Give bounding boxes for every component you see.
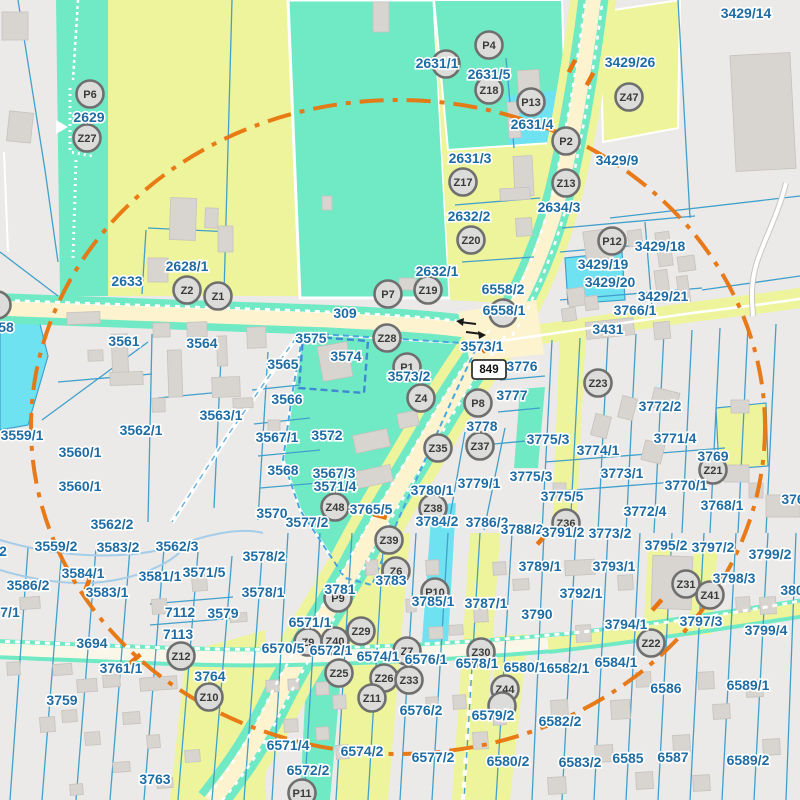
parcel-label: 3575 [295, 330, 326, 346]
building [548, 777, 567, 795]
map-marker-z35[interactable]: Z35 [425, 435, 452, 462]
parcel-label: 7/1 [0, 604, 20, 620]
road-shield-label: 849 [479, 364, 498, 376]
parcel-label: 2 [0, 543, 7, 559]
building [724, 465, 749, 482]
building [473, 732, 489, 750]
parcel-label: 3797/3 [680, 613, 723, 629]
parcel-label: 3570 [256, 505, 287, 521]
building [653, 321, 671, 340]
building [62, 709, 78, 722]
building [453, 695, 467, 710]
parcel-label: 3789/1 [519, 558, 562, 574]
map-marker-p13[interactable]: P13 [518, 89, 545, 116]
building [169, 198, 196, 241]
parcel-label: 6572/2 [287, 762, 330, 778]
parcel-label: 3572 [311, 427, 342, 443]
map-marker-z20[interactable]: Z20 [458, 227, 485, 254]
parcel-label: 6571/4 [267, 737, 310, 753]
parcel-label: 3578/2 [243, 548, 286, 564]
parcel-label: 2628/1 [166, 258, 209, 274]
building [247, 327, 267, 349]
marker-label: Z29 [352, 626, 371, 638]
cadastral-map-svg[interactable]: P6Z27Z2Z1P4Z18P13P2Z13Z47Z17Z20P12P7Z19Z… [0, 0, 800, 800]
parcel-label: 6558/2 [482, 281, 525, 297]
building [698, 672, 715, 690]
parcel-label: 6578/1 [456, 655, 499, 671]
parcel-label: 3793/1 [593, 558, 636, 574]
map-marker-z11[interactable]: Z11 [359, 685, 386, 712]
building [316, 682, 330, 696]
building [731, 400, 749, 413]
marker-label: Z18 [480, 85, 499, 97]
parcel-label: 6574/2 [341, 743, 384, 759]
map-marker-z13[interactable]: Z13 [553, 170, 580, 197]
parcel-label: 6586 [650, 680, 681, 696]
parcel-label: 6584/1 [595, 654, 638, 670]
building [426, 560, 440, 576]
map-marker-z2[interactable]: Z2 [174, 277, 201, 304]
parcel-label: 3579 [207, 605, 238, 621]
marker-label: Z35 [429, 443, 448, 455]
map-marker-z39[interactable]: Z39 [376, 527, 403, 554]
map-marker-p2[interactable]: P2 [553, 128, 580, 155]
marker-label: P7 [381, 289, 394, 301]
parcel-label: 3790 [521, 606, 552, 622]
parcel-label: 6583/2 [559, 754, 602, 770]
building [693, 775, 711, 792]
map-marker-z28[interactable]: Z28 [374, 325, 401, 352]
map-marker-p4[interactable]: P4 [476, 32, 503, 59]
parcel-label: 3772/4 [624, 503, 667, 519]
map-marker-z25[interactable]: Z25 [326, 660, 353, 687]
marker-label: Z33 [400, 675, 419, 687]
marker-label: Z22 [642, 638, 661, 650]
building [373, 2, 389, 32]
map-canvas[interactable]: P6Z27Z2Z1P4Z18P13P2Z13Z47Z17Z20P12P7Z19Z… [0, 0, 800, 800]
marker-label: Z31 [677, 579, 696, 591]
parcel-label: 3431 [592, 321, 623, 337]
marker-label: Z17 [454, 177, 473, 189]
building [322, 196, 332, 210]
parcel-label: 3761/1 [100, 660, 143, 676]
parcel-label: 6574/1 [357, 648, 400, 664]
parcel-label: 3794/1 [605, 616, 648, 632]
building [153, 323, 170, 338]
parcel-label: 3759 [46, 692, 77, 708]
parcel-label: 6589/2 [727, 752, 770, 768]
marker-label: Z25 [330, 668, 349, 680]
parcel-label: 3561 [108, 333, 139, 349]
parcel-label: 3799/4 [745, 622, 788, 638]
map-marker-z1[interactable]: Z1 [205, 283, 232, 310]
parcel-label: 309 [333, 305, 357, 321]
building [333, 695, 347, 710]
parcel-label: 6582/1 [547, 660, 590, 676]
parcel-label: 3770/1 [665, 477, 708, 493]
marker-label: P4 [482, 40, 496, 52]
parcel-label: 3787/1 [465, 595, 508, 611]
parcel-label: 3773/1 [601, 465, 644, 481]
parcel-label: 3562/3 [156, 538, 199, 554]
parcel-label: 6558/1 [483, 302, 526, 318]
parcel-label: 3799/2 [749, 546, 792, 562]
marker-label: Z13 [557, 178, 576, 190]
parcel-label: 2629 [73, 109, 104, 125]
marker-label: Z48 [326, 502, 345, 514]
parcel-label: 3560/1 [59, 444, 102, 460]
building [611, 700, 631, 720]
map-marker-z29[interactable]: Z29 [348, 618, 375, 645]
building [618, 575, 634, 591]
parcel-label: 2632/2 [448, 208, 491, 224]
parcel-label: 6585 [612, 750, 643, 766]
parcel-label: 3763 [139, 771, 170, 787]
marker-label: Z21 [704, 465, 723, 477]
parcel-label: 7113 [163, 626, 194, 642]
building [70, 784, 84, 796]
parcel-label: 3772/2 [639, 398, 682, 414]
parcel-label: 3571/5 [183, 564, 226, 580]
parcel-label: 3429/9 [596, 152, 639, 168]
parcel-label: 6577/2 [412, 749, 455, 765]
parcel-label: 6587 [657, 749, 688, 765]
map-marker-z17[interactable]: Z17 [450, 169, 477, 196]
parcel-label: 3781 [324, 581, 355, 597]
parcel-label: 3797/2 [692, 539, 735, 555]
parcel-label: 6589/1 [727, 677, 770, 693]
parcel-label: 3583/2 [97, 539, 140, 555]
parcel-label: 3788/2 [501, 521, 544, 537]
building [77, 678, 98, 692]
parcel-label: 3429/18 [635, 238, 686, 254]
marker-label: Z23 [589, 378, 608, 390]
building [88, 350, 103, 362]
parcel-label: 3577/2 [286, 514, 329, 530]
map-marker-p11[interactable]: P11 [289, 780, 316, 800]
building [147, 735, 161, 749]
parcel-label: 3779/1 [458, 475, 501, 491]
building [565, 559, 596, 576]
building [513, 579, 530, 591]
parcel-label: 2632/1 [416, 263, 459, 279]
parcel-label: 6570/5 [262, 640, 305, 656]
parcel-label: 3773/2 [589, 525, 632, 541]
parcel-label: 3785/1 [412, 593, 455, 609]
marker-label: Z4 [415, 393, 429, 405]
map-marker-z23[interactable]: Z23 [585, 370, 612, 397]
parcel-label: 6582/2 [539, 713, 582, 729]
parcel-label: 6576/1 [405, 651, 448, 667]
map-marker-z10[interactable]: Z10 [196, 684, 223, 711]
parcel-label: 3769 [697, 448, 728, 464]
parcel-label: 3571/4 [314, 478, 357, 494]
building [110, 371, 143, 385]
parcel-label: 7112 [165, 604, 196, 620]
parcel-label: 3775/3 [510, 468, 553, 484]
marker-label: Z10 [200, 692, 219, 704]
marker-label: Z28 [378, 333, 397, 345]
parcel-label: 6572/1 [310, 642, 353, 658]
road-shield: 849 [472, 360, 506, 379]
marker-label: P8 [471, 398, 484, 410]
parcel-label: 3776 [506, 358, 537, 374]
parcel-label: 3573/1 [461, 338, 504, 354]
building [429, 627, 444, 640]
map-marker-z47[interactable]: Z47 [616, 84, 643, 111]
building [584, 295, 599, 311]
parcel-label: 6579/2 [472, 707, 515, 723]
building [493, 562, 507, 576]
parcel-label: 3584/1 [62, 565, 105, 581]
parcel-label: 3766/1 [614, 302, 657, 318]
building [567, 287, 586, 307]
parcel-label: 3694 [76, 635, 107, 651]
building [7, 662, 21, 676]
building [39, 716, 55, 732]
parcel-label: 3567/1 [256, 429, 299, 445]
parcel-label: 6580/1 [504, 659, 547, 675]
building [6, 111, 33, 143]
parcel-label: 3559/1 [1, 427, 44, 443]
marker-label: Z11 [363, 693, 381, 705]
parcel-label: 3578/1 [242, 584, 285, 600]
marker-label: Z2 [181, 285, 194, 297]
building [216, 336, 227, 366]
map-marker-p6[interactable]: P6 [77, 81, 104, 108]
building [167, 350, 183, 397]
marker-label: Z26 [375, 673, 394, 685]
marker-label: P13 [521, 97, 541, 109]
map-marker-p12[interactable]: P12 [599, 228, 626, 255]
parcel-label: 6571/1 [289, 614, 332, 630]
marker-label: Z41 [701, 590, 720, 602]
building [53, 663, 73, 675]
map-marker-p8[interactable]: P8 [465, 390, 492, 417]
parcel-label: 2631/3 [449, 150, 492, 166]
map-marker-z33[interactable]: Z33 [396, 667, 423, 694]
parcel-label: 3564 [186, 335, 217, 351]
parcel-label: 3429/26 [605, 54, 656, 70]
parcel-label: 380 [780, 582, 800, 598]
map-marker-z19[interactable]: Z19 [415, 277, 442, 304]
parcel-label: 3429/19 [578, 256, 629, 272]
map-marker-p7[interactable]: P7 [375, 281, 402, 308]
marker-label: P11 [293, 788, 312, 800]
parcel-label: 3559/2 [35, 538, 78, 554]
parcel-label: 2634/3 [538, 199, 581, 215]
parcel-label: 3566 [271, 391, 302, 407]
parcel-label: 3568 [267, 462, 298, 478]
marker-label: Z47 [620, 92, 639, 104]
parcel-label: 3586/2 [7, 577, 50, 593]
parcel-label: 3565 [267, 356, 298, 372]
parcel-label: 3778 [466, 418, 497, 434]
parcel-label: 3562/1 [120, 422, 163, 438]
marker-label: Z12 [172, 651, 191, 663]
building [123, 711, 141, 724]
parcel-label: 3774/1 [577, 442, 620, 458]
building [20, 596, 41, 609]
parcel-label: 376 [781, 491, 800, 507]
parcel-label: 3560/1 [59, 478, 102, 494]
building [500, 187, 531, 201]
parcel-label: 58 [0, 319, 14, 335]
building [212, 377, 241, 398]
marker-label: Z27 [78, 133, 97, 145]
parcel-label: 3429/20 [585, 274, 636, 290]
parcel-label: 3765/5 [350, 501, 393, 517]
building [284, 719, 299, 733]
building [561, 307, 577, 322]
map-marker-z27[interactable]: Z27 [74, 125, 101, 152]
parcel-label: 3798/3 [713, 570, 756, 586]
parcel-label: 6580/2 [487, 753, 530, 769]
building [185, 749, 201, 762]
parcel-label: 3562/2 [91, 516, 134, 532]
marker-label: Z1 [212, 291, 225, 303]
parcel-label: 6576/2 [400, 702, 443, 718]
parcel-label: 3795/2 [645, 537, 688, 553]
building [713, 704, 731, 720]
building [316, 727, 330, 741]
parcel-label: 2631/4 [511, 116, 554, 132]
map-marker-z37[interactable]: Z37 [467, 433, 494, 460]
parcel-label: 3581/1 [139, 568, 182, 584]
parcel-label: 3775/3 [527, 431, 570, 447]
parcel-label: 3573/2 [388, 368, 431, 384]
parcel-label: 3791/2 [542, 524, 585, 540]
building [103, 674, 121, 687]
building [2, 12, 28, 40]
parcel-label: 3429/14 [721, 5, 772, 21]
marker-label: P2 [559, 136, 572, 148]
marker-label: P6 [83, 89, 96, 101]
parcel-label: 3574 [330, 348, 361, 364]
parcel-label: 3563/1 [200, 407, 243, 423]
map-marker-z22[interactable]: Z22 [638, 630, 665, 657]
parcel-label: 3775/5 [541, 488, 584, 504]
parcel-label: 3764 [194, 668, 225, 684]
parcel-label: 2631/5 [468, 66, 511, 82]
building [516, 218, 533, 237]
building [218, 226, 233, 252]
parcel-label: 2631/1 [416, 55, 459, 71]
parcel-label: 2633 [111, 273, 142, 289]
building [205, 208, 219, 228]
building [152, 398, 165, 412]
building [67, 311, 100, 324]
parcel-label: 3768/1 [701, 497, 744, 513]
building [449, 625, 464, 636]
parcel-label: 3583/1 [86, 584, 129, 600]
marker-label: Z19 [419, 285, 438, 297]
building [85, 731, 101, 745]
marker-label: Z20 [462, 235, 481, 247]
marker-label: Z39 [380, 535, 399, 547]
parcel-label: 3771/4 [654, 430, 697, 446]
parcel-label: 3777 [496, 387, 527, 403]
marker-label: P12 [602, 236, 622, 248]
parcel-label: 3783 [375, 572, 406, 588]
marker-label: Z37 [471, 441, 490, 453]
map-marker-z12[interactable]: Z12 [168, 643, 195, 670]
building [113, 761, 131, 772]
building [677, 255, 696, 272]
parcel-label: 3780/1 [411, 482, 454, 498]
parcel-label: 3784/2 [416, 513, 459, 529]
building [636, 772, 654, 790]
parcel-label: 3792/1 [560, 585, 603, 601]
map-marker-z4[interactable]: Z4 [408, 385, 435, 412]
building [730, 53, 796, 172]
